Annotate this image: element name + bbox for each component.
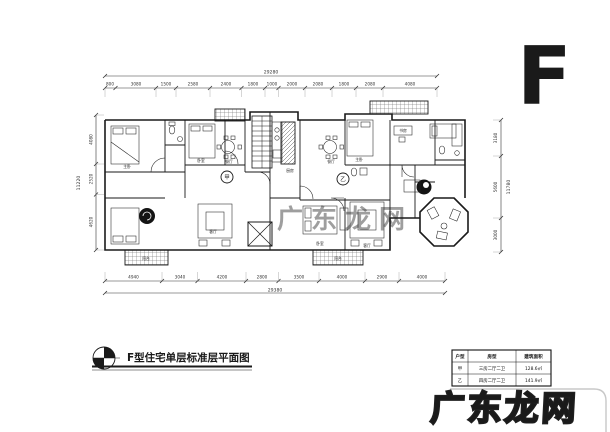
kitchen-shaft xyxy=(281,122,295,164)
toilet xyxy=(351,168,367,176)
dim-bottom-seg: 3500 xyxy=(294,275,305,280)
room-label: 卧室 xyxy=(197,158,205,163)
dim-top-seg: 2580 xyxy=(188,82,199,87)
dim-bottom-seg: 4200 xyxy=(217,275,228,280)
dim-top-seg: 800 xyxy=(106,82,114,87)
elevator-x xyxy=(248,222,272,246)
bottom-dimension-labels: 4940 3040 4200 2800 3500 4000 2900 4000 … xyxy=(128,275,427,294)
unit-label-yi: 乙 xyxy=(340,176,346,183)
room-labels: 主卧 卧室 餐厅 厨房 客厅 餐厅 主卧 客厅 卧室 阳台 阳台 书房 xyxy=(123,128,407,261)
table-cell: 128.6㎡ xyxy=(525,365,543,372)
room-label: 客厅 xyxy=(209,229,217,234)
room-label: 卧室 xyxy=(316,241,324,246)
toilet xyxy=(169,122,183,142)
dim-top-seg: 1800 xyxy=(339,82,350,87)
stair-core xyxy=(248,116,272,246)
dim-bottom-seg: 4940 xyxy=(128,275,139,280)
dim-top-seg: 2000 xyxy=(287,82,298,87)
room-label: 主卧 xyxy=(355,157,363,162)
dining-table xyxy=(319,136,344,159)
dim-top-total: 29280 xyxy=(264,70,279,76)
dim-top-seg: 2400 xyxy=(221,82,232,87)
bed xyxy=(347,120,373,156)
table-cell: 乙 xyxy=(458,377,463,384)
dim-left-total: 11220 xyxy=(76,176,82,191)
dim-bottom-seg: 2900 xyxy=(377,275,388,280)
dim-top-seg: 1800 xyxy=(248,82,259,87)
dim-bottom-total: 29380 xyxy=(268,288,283,294)
cad-drawing-page: 广东龙网 29280 800 3080 1500 2580 2400 1800 … xyxy=(0,0,610,432)
room-label: 厨房 xyxy=(286,168,294,173)
round-table-dark xyxy=(139,208,155,224)
dim-right-seg: 5600 xyxy=(493,181,498,192)
sofa-set xyxy=(198,204,232,246)
site-watermark: 广东龙网 xyxy=(430,389,580,429)
dim-left-seg: 4080 xyxy=(89,134,94,145)
room-label: 书房 xyxy=(399,128,407,133)
letter-f-mark: F xyxy=(517,30,572,123)
table-header: 户型 xyxy=(454,353,465,360)
unit-label-jia: 甲 xyxy=(224,174,230,181)
bed xyxy=(189,124,215,158)
dim-top-seg: 4080 xyxy=(405,82,416,87)
table-cell: 三房二厅二卫 xyxy=(479,365,506,372)
unit-labels: 甲 乙 xyxy=(221,171,349,185)
bed xyxy=(111,208,139,244)
table-cell: 甲 xyxy=(458,366,462,372)
room-label: 阳台 xyxy=(142,256,150,261)
bed xyxy=(111,126,139,164)
dining-table xyxy=(217,136,242,159)
dim-bottom-seg: 3040 xyxy=(175,275,186,280)
dim-left-seg: 4620 xyxy=(89,216,94,227)
dim-right-total: 11780 xyxy=(506,180,512,195)
room-label: 餐厅 xyxy=(225,159,233,164)
table-cell: 四房二厅二卫 xyxy=(479,377,506,384)
kitchen-counter xyxy=(272,122,282,162)
table-header: 建筑面积 xyxy=(523,353,543,360)
room-label: 阳台 xyxy=(334,256,342,261)
top-dimension-labels: 29280 800 3080 1500 2580 2400 1800 1000 … xyxy=(106,70,416,87)
room-label: 客厅 xyxy=(363,243,371,248)
dim-top-seg: 2080 xyxy=(313,82,324,87)
title-block: F型住宅单层标准层平面图 xyxy=(92,347,252,370)
balcony-top-right xyxy=(370,101,428,114)
dim-bottom-seg: 4000 xyxy=(417,275,428,280)
sunroom-furniture xyxy=(427,207,460,240)
dim-bottom-seg: 2800 xyxy=(257,275,268,280)
left-dimension-labels: 4080 2520 4620 11220 xyxy=(76,134,94,227)
drawing-title: F型住宅单层标准层平面图 xyxy=(127,351,250,364)
left-dimension xyxy=(94,113,104,252)
dim-top-seg: 2080 xyxy=(365,82,376,87)
table-header: 房型 xyxy=(486,353,497,360)
right-dimension-labels: 3180 5600 3000 11780 xyxy=(493,132,512,240)
octagon-bay xyxy=(420,198,468,246)
dim-left-seg: 2520 xyxy=(89,173,94,184)
dim-right-seg: 3180 xyxy=(493,132,498,143)
dim-top-seg: 1000 xyxy=(267,82,278,87)
dim-top-seg: 3080 xyxy=(131,82,142,87)
room-label: 主卧 xyxy=(123,164,131,169)
dim-bottom-seg: 4000 xyxy=(337,275,348,280)
floorplan-canvas: 广东龙网 29280 800 3080 1500 2580 2400 1800 … xyxy=(0,0,610,432)
table-cell: 141.9㎡ xyxy=(525,377,543,384)
dim-top-seg: 1500 xyxy=(161,82,172,87)
dim-right-seg: 3000 xyxy=(493,229,498,240)
bathtub xyxy=(439,124,462,155)
area-table: 户型 房型 建筑面积 甲 三房二厅二卫 128.6㎡ 乙 四房二厅二卫 141.… xyxy=(452,350,551,386)
room-label: 餐厅 xyxy=(327,159,335,164)
